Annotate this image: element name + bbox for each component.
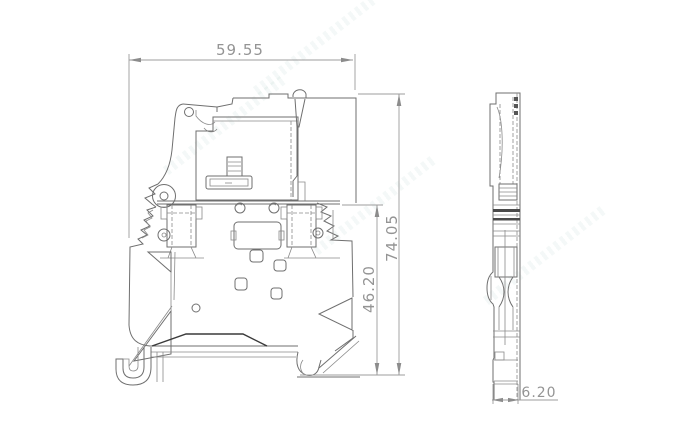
terminal-clamp-left (160, 205, 204, 258)
dim-overall-height-value: 74.05 (383, 214, 401, 262)
fuse-lever (145, 90, 306, 208)
dimension-body-height: 46.20 (342, 205, 383, 375)
square-hole (271, 288, 282, 299)
lever-hole (185, 108, 194, 117)
lever-slot (206, 176, 252, 189)
square-hole (274, 260, 286, 271)
technical-drawing-canvas: 59.55 74.05 46.20 6.20 (0, 0, 680, 440)
clamp-screw-right (313, 228, 323, 238)
dimension-width: 59.55 (129, 41, 355, 238)
square-hole (235, 278, 247, 290)
round-hole (192, 304, 200, 312)
square-hole (250, 250, 263, 262)
din-hook-left (116, 347, 151, 385)
lever-button (227, 157, 242, 176)
dim-width-value: 59.55 (216, 41, 264, 59)
dim-thickness-value: 6.20 (521, 385, 556, 401)
din-rail-foot (116, 336, 360, 385)
drawing-svg: 59.55 74.05 46.20 6.20 (0, 0, 680, 440)
terminal-clamp-right (281, 205, 340, 258)
terminal-body (129, 201, 353, 366)
clamp-screw-left (158, 229, 170, 241)
front-view (116, 90, 360, 385)
serrated-edge-left (129, 207, 156, 325)
housing-top (233, 94, 356, 203)
side-view (487, 93, 520, 400)
dim-body-height-value: 46.20 (360, 265, 378, 313)
center-recess (234, 222, 281, 249)
din-foot-right (297, 352, 321, 376)
dimension-thickness: 6.20 (492, 384, 558, 404)
